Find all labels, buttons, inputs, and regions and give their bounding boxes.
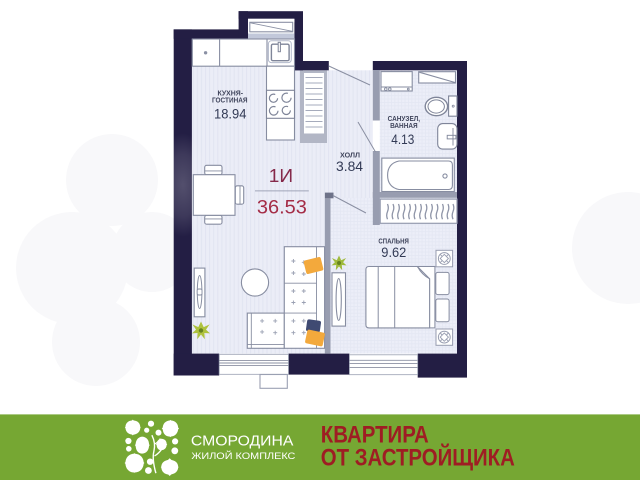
svg-text:1И: 1И — [269, 165, 293, 186]
svg-text:ГОСТИНАЯ: ГОСТИНАЯ — [212, 98, 248, 105]
svg-text:ЖИЛОЙ КОМПЛЕКС: ЖИЛОЙ КОМПЛЕКС — [191, 450, 296, 461]
svg-text:СМОРОДИНА: СМОРОДИНА — [191, 433, 294, 450]
svg-text:3.84: 3.84 — [336, 158, 363, 174]
svg-text:КУХНЯ-: КУХНЯ- — [218, 90, 244, 97]
svg-text:4.13: 4.13 — [391, 131, 414, 147]
svg-text:18.94: 18.94 — [214, 105, 247, 121]
svg-text:ВАННАЯ: ВАННАЯ — [390, 123, 418, 130]
svg-text:ОТ ЗАСТРОЙЩИКА: ОТ ЗАСТРОЙЩИКА — [321, 443, 515, 471]
svg-text:36.53: 36.53 — [257, 197, 307, 218]
svg-text:9.62: 9.62 — [381, 244, 406, 260]
svg-text:САНУЗЕЛ,: САНУЗЕЛ, — [388, 116, 421, 123]
